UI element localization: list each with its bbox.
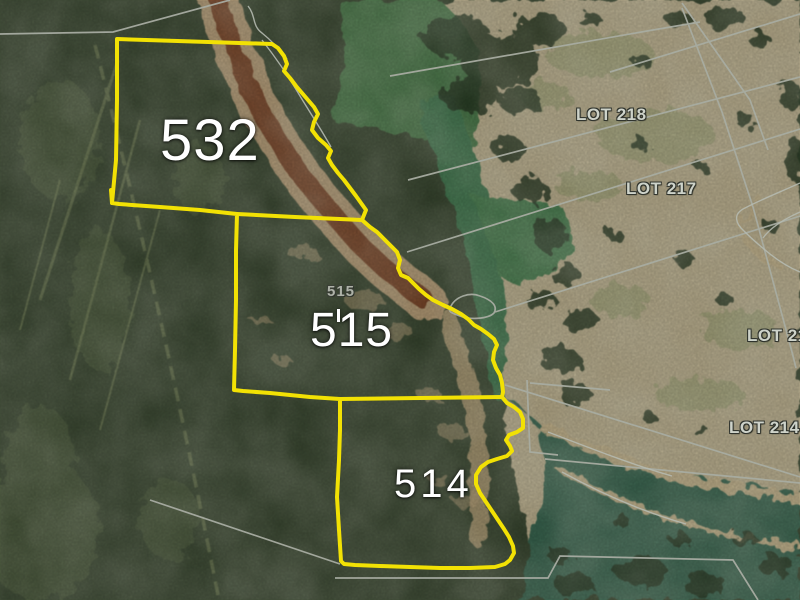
satellite-map-view[interactable]: 532 515 514 515 LOT 218 LOT 217 LOT 21 L… bbox=[0, 0, 800, 600]
lot-label-21x-clipped: LOT 21 bbox=[747, 326, 800, 346]
parcel-divider-515-514 bbox=[340, 397, 502, 399]
parcel-label-514: 514 bbox=[394, 464, 473, 504]
parcel-label-532: 532 bbox=[160, 112, 260, 170]
parcel-label-515-small: 515 bbox=[327, 283, 355, 300]
parcel-label-515: 515 bbox=[310, 307, 393, 355]
terrain-base bbox=[0, 0, 800, 600]
label-tick-mark bbox=[337, 309, 340, 322]
lot-label-217: LOT 217 bbox=[626, 179, 697, 199]
lot-label-218: LOT 218 bbox=[576, 105, 647, 125]
boundary-stub bbox=[111, 190, 112, 203]
satellite-imagery bbox=[0, 0, 800, 600]
lot-label-214: LOT 214 bbox=[729, 418, 800, 438]
